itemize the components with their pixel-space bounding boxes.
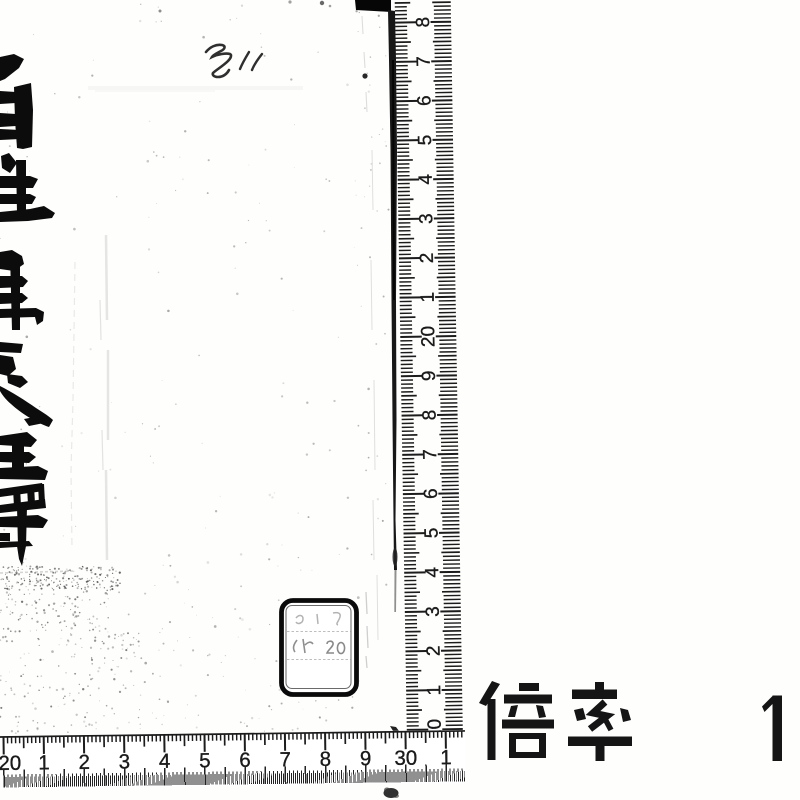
svg-text:2: 2: [423, 645, 444, 656]
svg-text:1: 1: [418, 292, 439, 303]
svg-text:6: 6: [414, 95, 435, 106]
svg-text:8: 8: [413, 17, 434, 28]
svg-text:1: 1: [424, 685, 445, 696]
svg-text:4: 4: [422, 566, 443, 577]
svg-text:2: 2: [417, 252, 438, 263]
svg-text:3: 3: [416, 213, 437, 224]
svg-text:5: 5: [415, 135, 436, 146]
svg-text:9: 9: [419, 370, 440, 381]
svg-text:6: 6: [421, 488, 442, 499]
svg-text:3: 3: [423, 606, 444, 617]
svg-text:7: 7: [420, 449, 441, 460]
svg-text:8: 8: [419, 410, 440, 421]
svg-text:5: 5: [421, 528, 442, 539]
svg-text:7: 7: [414, 56, 435, 67]
svg-text:4: 4: [416, 173, 437, 184]
svg-text:20: 20: [418, 326, 439, 347]
